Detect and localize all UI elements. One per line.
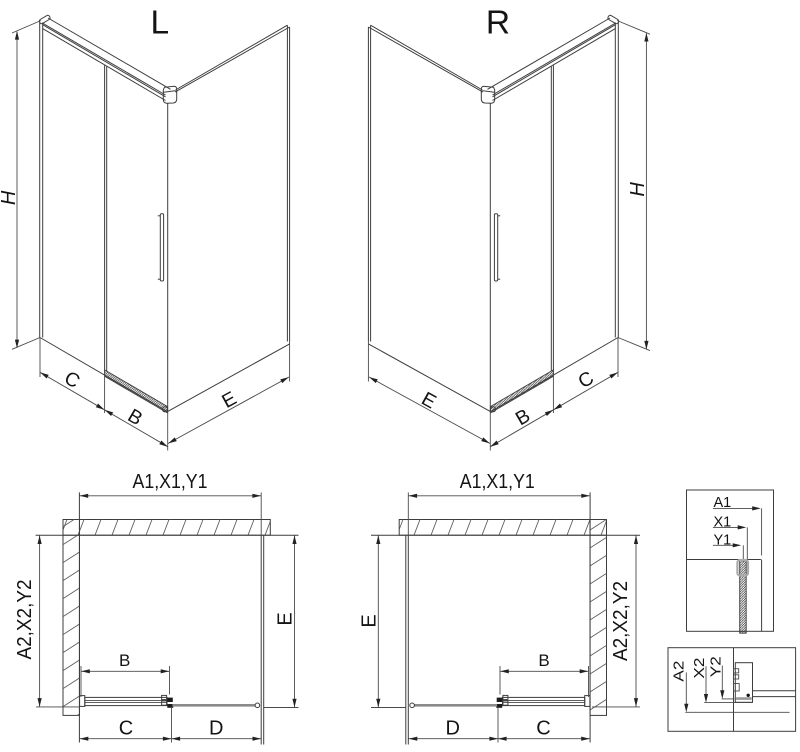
svg-text:E: E [275,612,297,625]
svg-text:C: C [536,718,550,740]
svg-text:D: D [445,718,459,740]
svg-text:B: B [119,651,130,670]
svg-text:B: B [538,651,549,670]
svg-text:H: H [0,190,20,205]
svg-text:D: D [209,718,223,740]
svg-text:H: H [627,182,649,197]
svg-text:Y1: Y1 [714,532,732,548]
svg-text:E: E [358,614,380,627]
svg-text:A2: A2 [671,661,688,682]
svg-text:L: L [150,5,169,42]
svg-text:A2,X2,Y2: A2,X2,Y2 [610,581,632,661]
svg-text:R: R [486,5,510,42]
svg-text:C: C [119,718,133,740]
svg-text:A1,X1,Y1: A1,X1,Y1 [133,471,208,493]
svg-text:A1,X1,Y1: A1,X1,Y1 [460,471,535,493]
svg-text:A2,X2,Y2: A2,X2,Y2 [14,580,36,660]
svg-text:X1: X1 [714,514,732,530]
svg-text:X2: X2 [691,658,708,679]
